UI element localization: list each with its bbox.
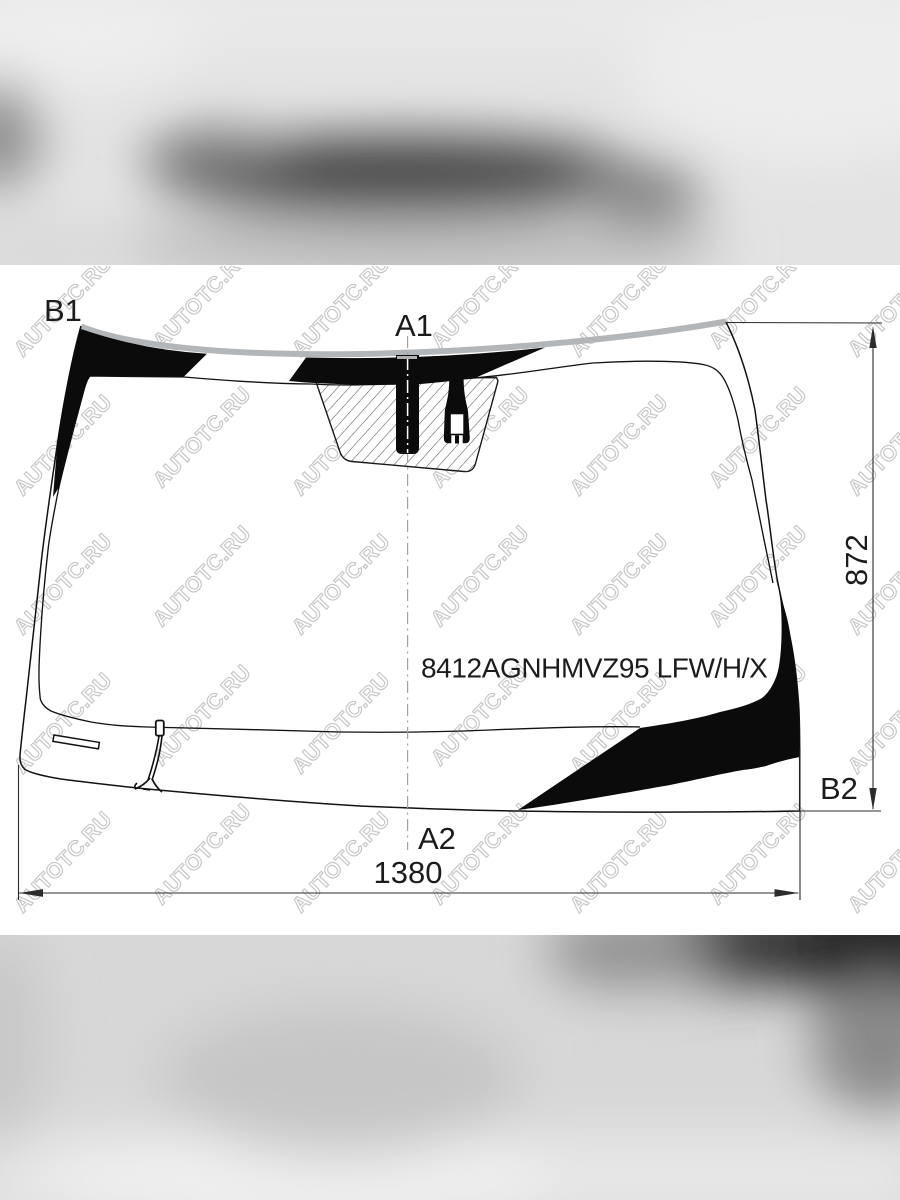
svg-text:A2: A2 bbox=[418, 821, 456, 856]
svg-text:1380: 1380 bbox=[374, 855, 443, 890]
svg-text:B1: B1 bbox=[44, 293, 82, 328]
svg-text:8412AGNHMVZ95 LFW/H/X: 8412AGNHMVZ95 LFW/H/X bbox=[421, 653, 768, 684]
svg-text:872: 872 bbox=[839, 534, 874, 586]
svg-text:B2: B2 bbox=[820, 771, 858, 806]
svg-text:A1: A1 bbox=[395, 308, 433, 343]
